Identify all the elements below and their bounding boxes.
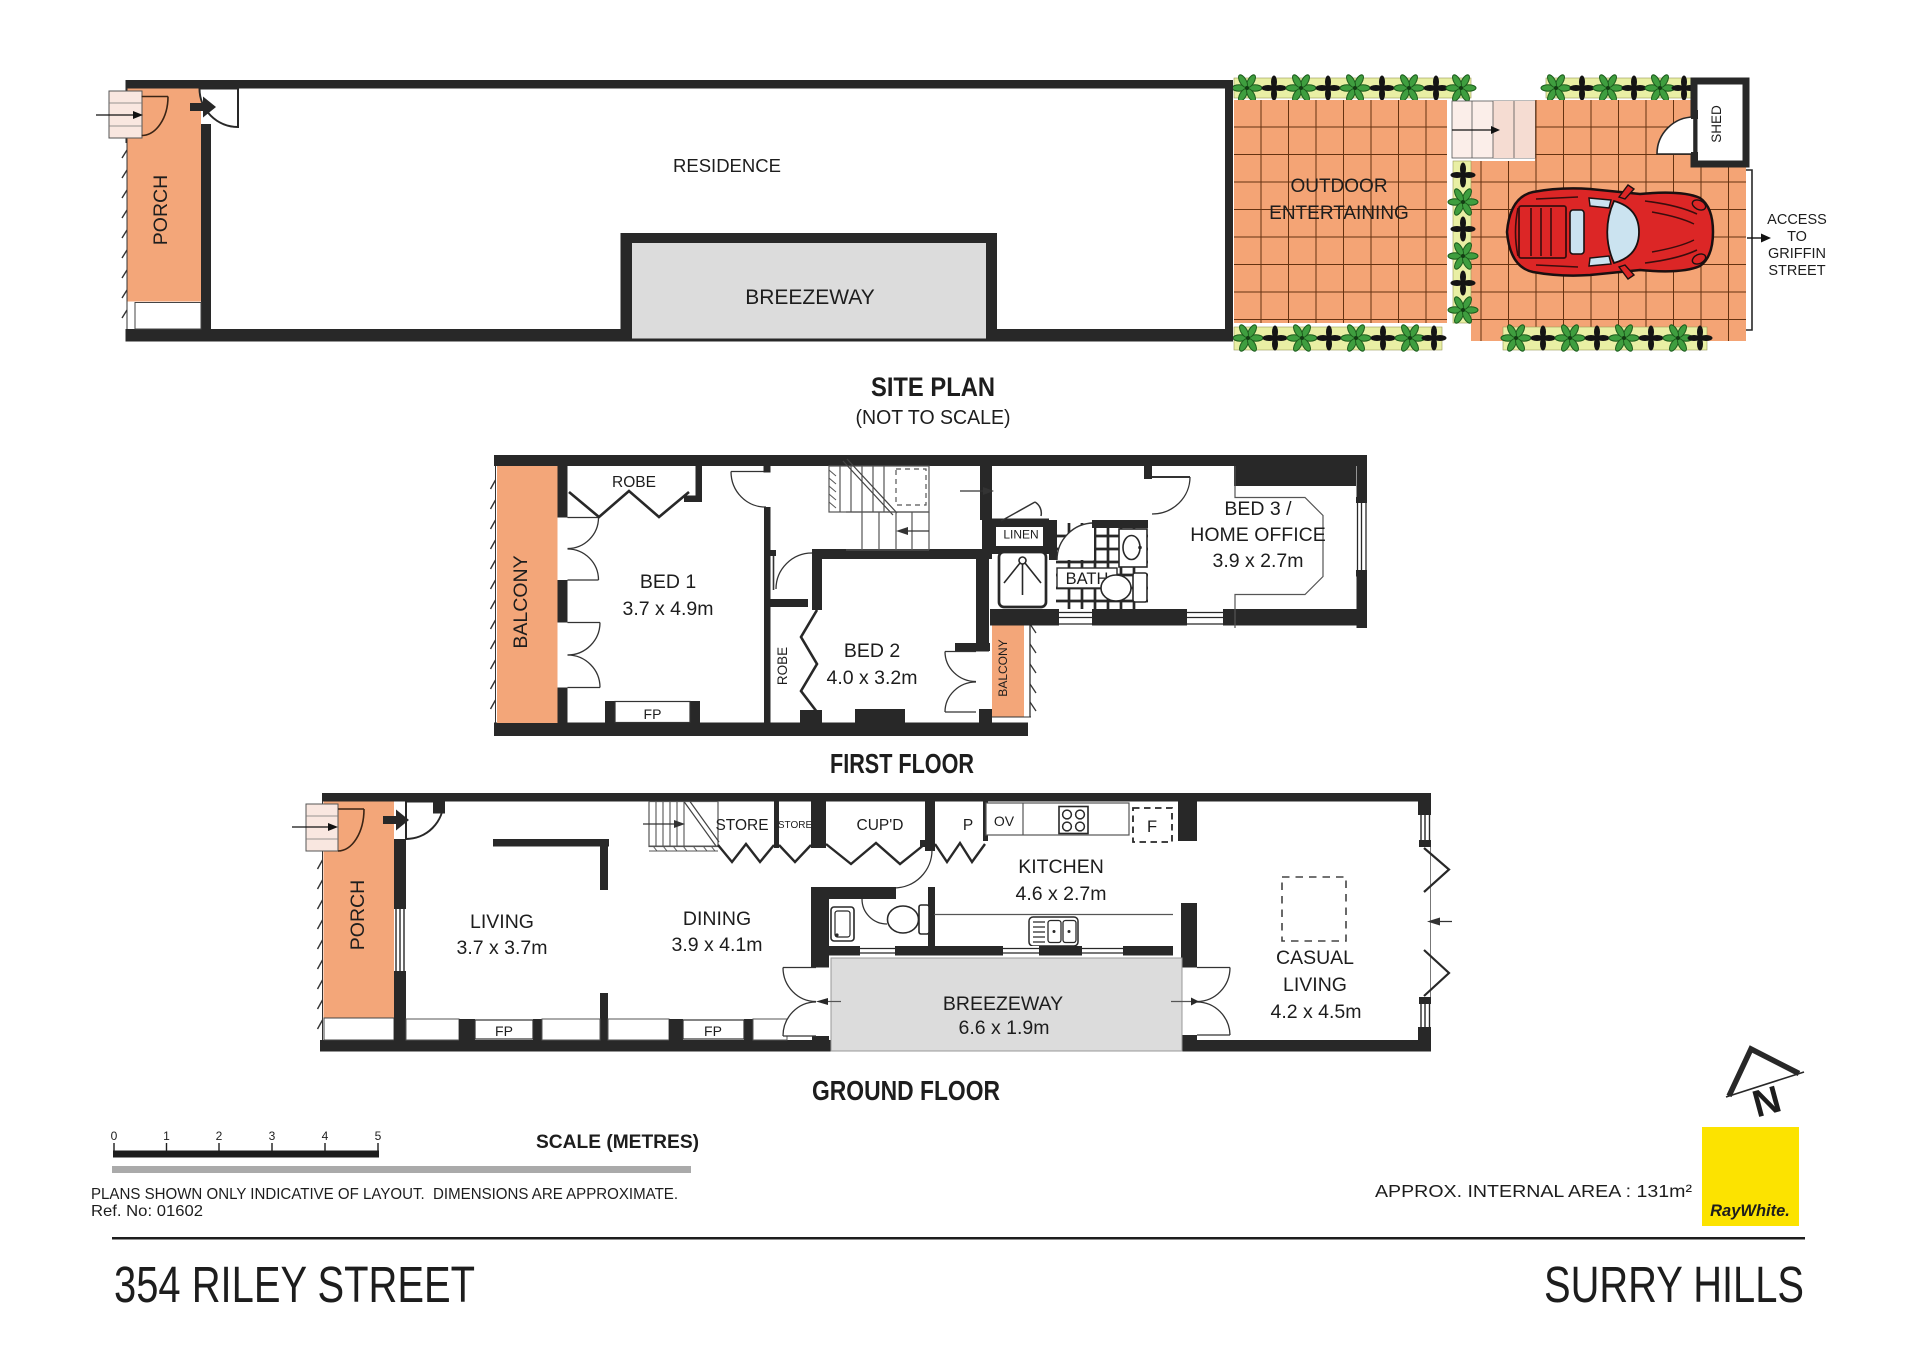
svg-text:4.2 x 4.5m: 4.2 x 4.5m bbox=[1270, 1001, 1361, 1023]
svg-text:STORE: STORE bbox=[778, 820, 813, 831]
svg-text:PORCH: PORCH bbox=[347, 880, 369, 950]
svg-text:PORCH: PORCH bbox=[150, 175, 172, 245]
svg-text:4.0 x 3.2m: 4.0 x 3.2m bbox=[826, 667, 917, 689]
svg-text:3.7 x 4.9m: 3.7 x 4.9m bbox=[622, 598, 713, 620]
svg-text:F: F bbox=[1147, 818, 1157, 836]
svg-text:STORE: STORE bbox=[715, 817, 768, 834]
svg-text:APPROX. INTERNAL AREA : 131m²: APPROX. INTERNAL AREA : 131m² bbox=[1375, 1181, 1692, 1201]
svg-text:GROUND FLOOR: GROUND FLOOR bbox=[812, 1075, 1000, 1106]
svg-text:1: 1 bbox=[163, 1129, 170, 1143]
svg-text:OUTDOOR: OUTDOOR bbox=[1290, 176, 1387, 197]
svg-text:LIVING: LIVING bbox=[1283, 974, 1347, 996]
svg-text:BED 1: BED 1 bbox=[640, 571, 696, 593]
svg-text:TO: TO bbox=[1787, 229, 1807, 245]
svg-text:FIRST FLOOR: FIRST FLOOR bbox=[830, 748, 974, 779]
svg-text:6.6 x 1.9m: 6.6 x 1.9m bbox=[958, 1017, 1049, 1039]
svg-text:HOME OFFICE: HOME OFFICE bbox=[1190, 524, 1325, 546]
svg-text:CUP'D: CUP'D bbox=[857, 817, 904, 834]
svg-text:RayWhite.: RayWhite. bbox=[1710, 1202, 1790, 1220]
svg-text:ROBE: ROBE bbox=[775, 647, 790, 685]
svg-text:BED 3 /: BED 3 / bbox=[1224, 498, 1292, 520]
svg-text:BALCONY: BALCONY bbox=[996, 639, 1010, 696]
svg-text:3.9 x 2.7m: 3.9 x 2.7m bbox=[1212, 550, 1303, 572]
svg-text:DINING: DINING bbox=[683, 908, 751, 930]
svg-text:BED 2: BED 2 bbox=[844, 640, 900, 662]
svg-text:BREEZEWAY: BREEZEWAY bbox=[745, 286, 875, 309]
svg-text:(NOT TO SCALE): (NOT TO SCALE) bbox=[856, 407, 1011, 429]
svg-text:3.9 x 4.1m: 3.9 x 4.1m bbox=[671, 934, 762, 956]
svg-text:2: 2 bbox=[216, 1129, 223, 1143]
svg-text:PLANS SHOWN ONLY INDICATIVE OF: PLANS SHOWN ONLY INDICATIVE OF LAYOUT. D… bbox=[91, 1186, 678, 1203]
svg-text:LIVING: LIVING bbox=[470, 911, 534, 933]
svg-text:SCALE (METRES): SCALE (METRES) bbox=[536, 1132, 699, 1153]
svg-text:OV: OV bbox=[994, 813, 1015, 829]
svg-text:ROBE: ROBE bbox=[612, 474, 656, 491]
svg-text:GRIFFIN: GRIFFIN bbox=[1768, 246, 1826, 262]
svg-text:LINEN: LINEN bbox=[1003, 528, 1038, 542]
svg-text:4: 4 bbox=[322, 1129, 329, 1143]
svg-text:N: N bbox=[1748, 1079, 1785, 1127]
svg-text:BREEZEWAY: BREEZEWAY bbox=[943, 993, 1063, 1015]
svg-text:P: P bbox=[963, 817, 973, 834]
svg-text:ACCESS: ACCESS bbox=[1767, 212, 1827, 228]
svg-text:RESIDENCE: RESIDENCE bbox=[673, 155, 781, 176]
svg-text:3: 3 bbox=[269, 1129, 276, 1143]
svg-text:FP: FP bbox=[495, 1023, 513, 1039]
svg-text:SHED: SHED bbox=[1709, 105, 1724, 143]
svg-text:BALCONY: BALCONY bbox=[510, 555, 532, 648]
svg-text:SITE PLAN: SITE PLAN bbox=[871, 372, 995, 402]
svg-text:FP: FP bbox=[644, 706, 662, 722]
svg-text:3.7 x 3.7m: 3.7 x 3.7m bbox=[456, 937, 547, 959]
svg-text:ENTERTAINING: ENTERTAINING bbox=[1269, 203, 1409, 224]
svg-text:CASUAL: CASUAL bbox=[1276, 947, 1354, 969]
svg-text:4.6 x 2.7m: 4.6 x 2.7m bbox=[1015, 883, 1106, 905]
svg-text:FP: FP bbox=[704, 1023, 722, 1039]
svg-text:354 RILEY STREET: 354 RILEY STREET bbox=[114, 1256, 475, 1313]
svg-text:SURRY HILLS: SURRY HILLS bbox=[1544, 1256, 1804, 1313]
svg-text:0: 0 bbox=[111, 1129, 118, 1143]
svg-text:Ref. No: 01602: Ref. No: 01602 bbox=[91, 1203, 203, 1220]
svg-text:5: 5 bbox=[375, 1129, 382, 1143]
svg-text:KITCHEN: KITCHEN bbox=[1018, 856, 1104, 878]
svg-text:STREET: STREET bbox=[1768, 263, 1825, 279]
